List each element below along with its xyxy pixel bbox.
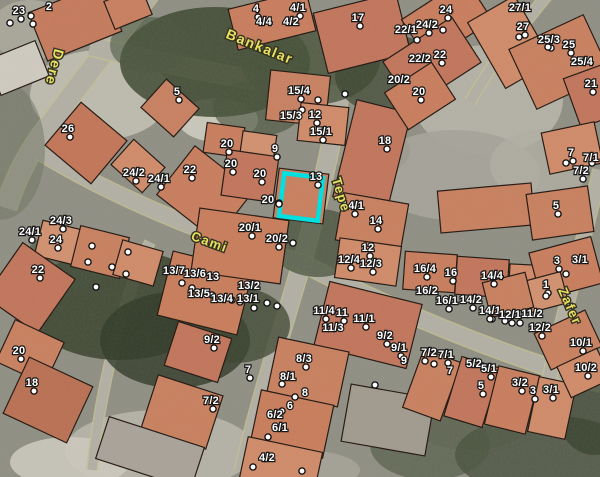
parcel-number-label: 10/2 — [575, 362, 597, 374]
parcel-number-label: 4/1 — [290, 2, 306, 14]
parcel-number-label: 20/1 — [239, 222, 261, 234]
parcel-number-label: 1 — [543, 279, 549, 291]
parcel-number-label: 12/3 — [360, 258, 382, 270]
parcel-number-label: 9 — [401, 355, 407, 367]
parcel-number-label: 7/1 — [583, 152, 599, 164]
parcel-number-label: 7/2 — [421, 347, 437, 359]
parcel-number-label: 24 — [50, 234, 63, 246]
parcel-number-label: 13/7 — [163, 265, 185, 277]
parcel-number-label: 24 — [440, 4, 453, 16]
parcel-number-label: 22 — [184, 164, 197, 176]
parcel-number-label: 20 — [225, 158, 238, 170]
parcel-number-label: 11/3 — [322, 322, 344, 334]
parcel-point-marker — [30, 21, 36, 27]
parcel-number-label: 8/3 — [296, 353, 312, 365]
parcel-number-label: 7/2 — [203, 395, 219, 407]
parcel-point-marker — [372, 382, 378, 388]
parcel-number-label: 14 — [370, 215, 383, 227]
parcel-point-marker — [251, 305, 257, 311]
parcel-point-marker — [276, 201, 282, 207]
parcel-number-label: 9/2 — [204, 334, 220, 346]
parcel-number-label: 15/3 — [280, 110, 302, 122]
parcel-number-label: 15/1 — [310, 126, 332, 138]
parcel-number-label: 13/2 — [238, 280, 260, 292]
parcel-number-label: 11/2 — [521, 308, 543, 320]
parcel-number-label: 3/1 — [572, 254, 588, 266]
parcel-number-label: 27/1 — [509, 2, 531, 14]
parcel-number-label: 20 — [413, 86, 426, 98]
parcel-number-label: 13/4 — [211, 293, 234, 305]
parcel-number-label: 22 — [434, 49, 447, 61]
parcel-number-label: 20 — [254, 168, 267, 180]
parcel-point-marker — [299, 468, 305, 474]
parcel-number-label: 4/2 — [283, 16, 299, 28]
parcel-number-label: 12 — [362, 242, 375, 254]
parcel-number-label: 23 — [13, 5, 26, 17]
parcel-number-label: 13/1 — [237, 293, 259, 305]
parcel-number-label: 26 — [62, 123, 75, 135]
parcel-point-marker — [265, 434, 271, 440]
parcel-point-marker — [290, 240, 296, 246]
parcel-point-marker — [28, 13, 34, 19]
parcel-number-label: 5 — [478, 380, 484, 392]
parcel-number-label: 25/4 — [571, 56, 594, 68]
parcel-point-marker — [125, 249, 131, 255]
parcel-number-label: 24/1 — [19, 226, 41, 238]
parcel-number-label: 4 — [253, 3, 260, 15]
parcel-number-label: 21 — [585, 78, 598, 90]
parcel-point-marker — [440, 27, 446, 33]
parcel-number-label: 25 — [563, 39, 576, 51]
parcel-number-label: 5 — [174, 86, 180, 98]
parcel-point-marker — [342, 91, 348, 97]
parcel-number-label: 17 — [352, 12, 365, 24]
parcel-number-label: 24/2 — [416, 19, 438, 31]
parcel-point-marker — [7, 20, 13, 26]
parcel-number-label: 3 — [554, 255, 560, 267]
parcel-number-label: 20/2 — [266, 233, 288, 245]
parcel-number-label: 7 — [245, 364, 251, 376]
parcel-number-label: 11/1 — [353, 313, 375, 325]
parcel-number-label: 6/2 — [267, 409, 283, 421]
parcel-number-label: 7/2 — [573, 165, 589, 177]
parcel-point-marker — [315, 97, 321, 103]
parcel-point-marker — [85, 259, 91, 265]
parcel-number-label: 12/2 — [529, 322, 551, 334]
parcel-number-label: 16/1 — [436, 295, 458, 307]
parcel-number-label: 14/4 — [481, 270, 504, 282]
parcel-point-marker — [89, 243, 95, 249]
parcel-number-label: 24/2 — [123, 167, 145, 179]
parcel-number-label: 12/4 — [338, 254, 361, 266]
parcel-number-label: 7 — [447, 365, 453, 377]
parcel-number-label: 13 — [207, 271, 220, 283]
parcel-number-label: 16/2 — [416, 285, 438, 297]
parcel-point-marker — [109, 264, 115, 270]
parcel-number-label: 7/1 — [438, 349, 454, 361]
parcel-number-label: 27 — [517, 21, 530, 33]
parcel-point-marker — [93, 284, 99, 290]
parcel-number-label: 20/2 — [388, 74, 410, 86]
parcel-number-label: 9/2 — [377, 330, 393, 342]
parcel-number-label: 3/2 — [512, 377, 528, 389]
parcel-number-label: 13/6 — [184, 268, 206, 280]
parcel-number-label: 6 — [287, 400, 293, 412]
parcel-number-label: 3/1 — [543, 384, 559, 396]
parcel-number-label: 5/1 — [481, 363, 497, 375]
parcel-number-label: 20 — [262, 194, 275, 206]
parcel-number-label: 2 — [46, 1, 52, 13]
parcel-number-label: 14/1 — [479, 305, 501, 317]
parcel-point-marker — [179, 280, 185, 286]
parcel-number-label: 9/1 — [391, 342, 407, 354]
parcel-point-marker — [274, 303, 280, 309]
parcel-number-label: 22/2 — [409, 53, 431, 65]
parcel-number-label: 22/1 — [395, 24, 417, 36]
parcel-point-marker — [543, 293, 549, 299]
parcel-number-label: 8 — [302, 387, 308, 399]
parcel-point-marker — [264, 300, 270, 306]
parcel-number-label: 13 — [310, 171, 323, 183]
parcel-number-label: 25/3 — [538, 34, 560, 46]
parcel-number-label: 7 — [568, 147, 574, 159]
parcel-number-label: 11/4 — [313, 305, 335, 317]
parcel-point-marker — [431, 361, 437, 367]
parcel-number-label: 12/1 — [499, 309, 521, 321]
parcel-number-label: 18 — [379, 135, 392, 147]
parcel-number-label: 15/4 — [288, 85, 311, 97]
parcel-number-label: 16/4 — [414, 263, 437, 275]
parcel-number-label: 20 — [13, 345, 26, 357]
parcel-point-marker — [516, 34, 522, 40]
parcel-number-label: 22 — [32, 264, 45, 276]
parcel-point-marker — [414, 37, 420, 43]
parcel-number-label: 4/4 — [256, 16, 273, 28]
parcel-number-label: 6/1 — [272, 422, 288, 434]
parcel-number-label: 20 — [221, 138, 234, 150]
parcel-point-marker — [563, 271, 569, 277]
parcel-number-label: 9 — [272, 143, 278, 155]
parcel-number-label: 24/1 — [148, 173, 170, 185]
parcel-number-label: 12 — [309, 109, 322, 121]
parcel-point-marker — [250, 464, 256, 470]
parcel-number-label: 8/1 — [280, 371, 296, 383]
parcel-number-label: 11 — [336, 307, 348, 319]
parcel-number-label: 18 — [26, 377, 39, 389]
parcel-number-label: 16 — [445, 267, 458, 279]
parcel-point-marker — [123, 271, 129, 277]
parcel-number-label: 10/1 — [570, 337, 592, 349]
parcel-number-label: 5 — [553, 200, 559, 212]
satellite-map-canvas[interactable]: 23244/14/44/2172427/124/222/12725/32525/… — [0, 0, 600, 477]
parcel-number-label: 4/2 — [259, 452, 275, 464]
parcel-number-label: 24/3 — [50, 215, 72, 227]
satellite-grain-texture — [0, 0, 600, 477]
parcel-number-label: 5/2 — [466, 358, 482, 370]
cadastral-map-viewport[interactable]: 23244/14/44/2172427/124/222/12725/32525/… — [0, 0, 600, 477]
parcel-number-label: 13/5 — [188, 288, 210, 300]
parcel-point-marker — [563, 160, 569, 166]
parcel-number-label: 3 — [530, 385, 536, 397]
